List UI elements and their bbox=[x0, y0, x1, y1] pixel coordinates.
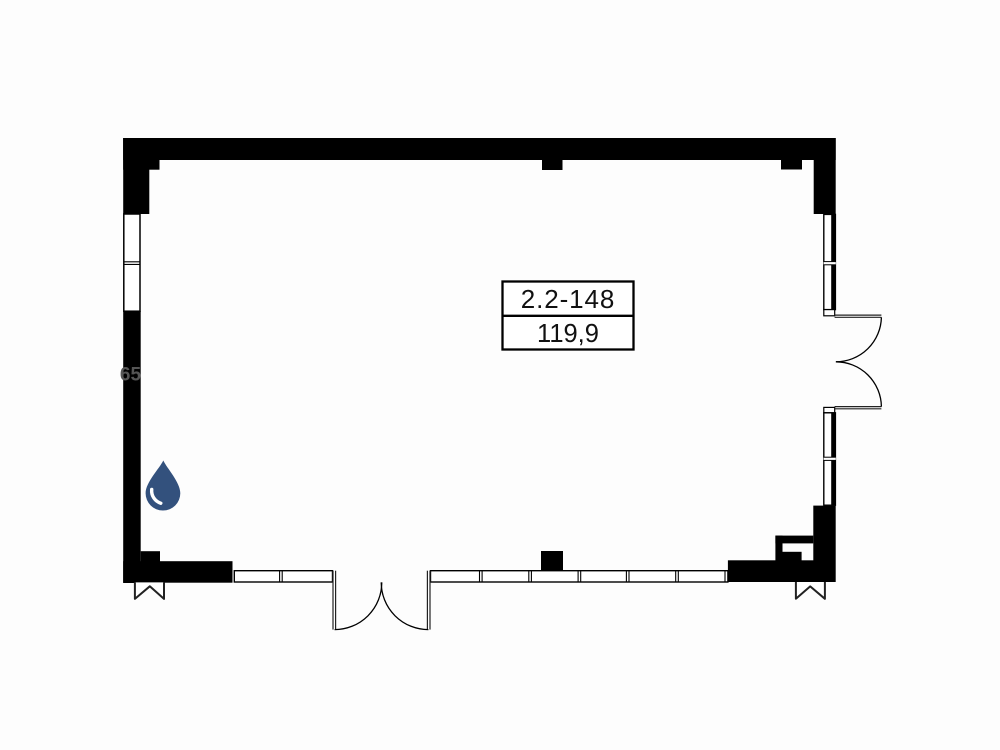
svg-text:2.2-148: 2.2-148 bbox=[521, 284, 615, 314]
svg-text:119,9: 119,9 bbox=[537, 320, 599, 348]
svg-text:65: 65 bbox=[120, 365, 142, 386]
